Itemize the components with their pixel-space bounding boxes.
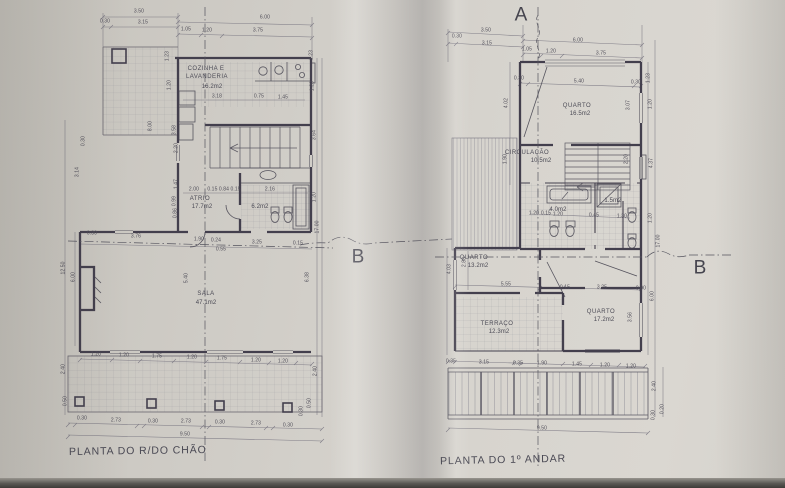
first-floor-linework bbox=[435, 5, 735, 480]
ground-floor-plan: 3.500.303.156.001.051.203.751.231.201.23… bbox=[55, 5, 335, 467]
first-floor-plan: A3.500.303.156.001.051.203.750.305.400.3… bbox=[435, 5, 735, 480]
ground-floor-linework bbox=[55, 5, 335, 467]
table-edge bbox=[0, 478, 785, 488]
blueprint-photo: 3.500.303.156.001.051.203.751.231.201.23… bbox=[0, 0, 785, 488]
plan-title-ground-floor: PLANTA DO R/DO CHÃO bbox=[69, 444, 207, 458]
section-marker: B bbox=[352, 248, 365, 267]
